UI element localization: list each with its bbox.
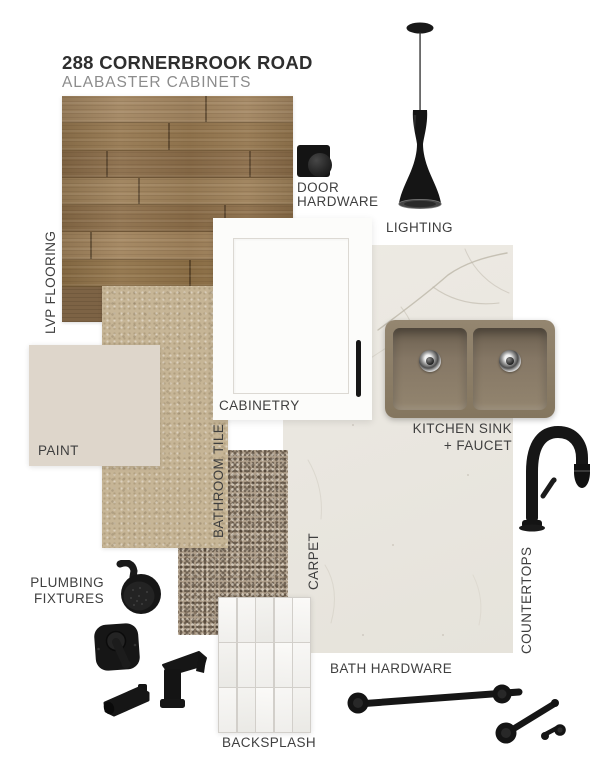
lvp-flooring-label: LVP FLOORING	[43, 226, 58, 334]
lighting-label: LIGHTING	[386, 221, 453, 235]
kitchen-sink-label: KITCHEN SINK + FAUCET	[400, 422, 512, 453]
door-knob-face	[308, 153, 332, 177]
plumbing-fixtures-label: PLUMBING FIXTURES	[20, 576, 104, 606]
robe-hook-icon	[540, 718, 572, 744]
sink-bowl-left	[393, 328, 467, 410]
bathroom-faucet-icon	[158, 641, 216, 711]
door-knob-icon	[297, 145, 330, 177]
kitchen-sink-label-line1: KITCHEN SINK	[400, 422, 512, 436]
backsplash-sample	[218, 597, 311, 733]
floor-plank	[62, 151, 293, 178]
carpet-label: CARPET	[306, 540, 321, 590]
board-subtitle: ALABASTER CABINETS	[62, 74, 251, 92]
backsplash-label: BACKSPLASH	[222, 736, 316, 750]
sink-drain	[499, 350, 521, 372]
plumbing-fixtures-label-line2: FIXTURES	[20, 592, 104, 606]
sink-drain	[419, 350, 441, 372]
lvp-flooring-sample-edge	[62, 287, 103, 322]
floor-plank	[62, 178, 293, 205]
bathroom-tile-label: BATHROOM TILE	[211, 430, 226, 538]
countertops-label: COUNTERTOPS	[519, 556, 534, 654]
sink-bowl-right	[473, 328, 547, 410]
floor-plank	[62, 123, 293, 150]
door-hardware-label-line2: HARDWARE	[297, 195, 378, 209]
door-hardware-label: DOOR HARDWARE	[297, 181, 378, 209]
plumbing-fixtures-label-line1: PLUMBING	[20, 576, 104, 590]
kitchen-faucet-icon	[516, 424, 598, 536]
mood-board: 288 CORNERBROOK ROAD ALABASTER CABINETS	[0, 0, 603, 768]
cabinet-handle	[356, 340, 361, 397]
cabinet-door-panel	[233, 238, 349, 394]
tub-spout-icon	[102, 684, 156, 720]
shower-valve-icon	[90, 620, 144, 674]
cabinetry-label: CABINETRY	[219, 399, 300, 413]
shower-head-icon	[106, 560, 170, 616]
kitchen-sink-sample	[385, 320, 555, 418]
paint-label: PAINT	[38, 444, 79, 458]
board-title: 288 CORNERBROOK ROAD	[62, 52, 313, 74]
pendant-light-icon	[394, 20, 446, 218]
door-hardware-label-line1: DOOR	[297, 181, 378, 195]
cabinet-door-sample	[213, 218, 372, 420]
kitchen-sink-label-line2: + FAUCET	[400, 439, 512, 453]
bath-hardware-label: BATH HARDWARE	[330, 662, 452, 676]
floor-plank	[62, 96, 293, 123]
